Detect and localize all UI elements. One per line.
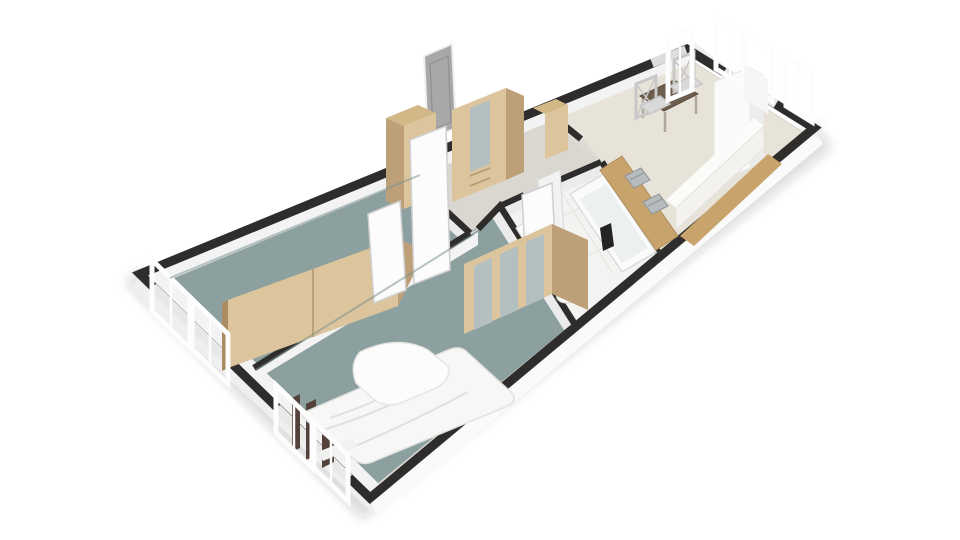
hall-wardrobe-mirror <box>470 100 490 172</box>
floor-plan-page <box>0 0 960 540</box>
cabinet-side <box>386 118 404 209</box>
wardrobe3d-mirror-1 <box>474 258 492 330</box>
wardrobe3d-mirror-2 <box>500 246 518 318</box>
cabinet-front <box>545 105 568 159</box>
wardrobe3d-mirror-3 <box>526 234 544 306</box>
floor-plan <box>0 0 960 540</box>
hall-wardrobe-side <box>506 88 524 180</box>
